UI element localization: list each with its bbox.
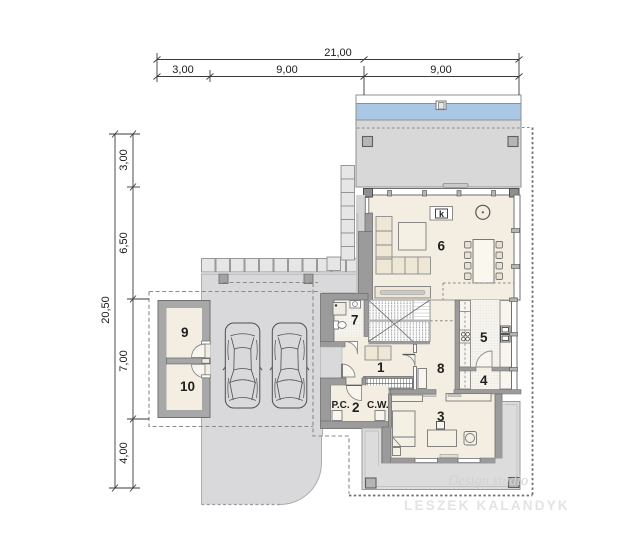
- svg-text:20,50: 20,50: [100, 296, 112, 324]
- svg-text:4: 4: [480, 373, 488, 388]
- svg-text:4,00: 4,00: [118, 442, 130, 463]
- svg-text:7: 7: [351, 313, 359, 328]
- svg-text:3,00: 3,00: [118, 149, 130, 170]
- svg-text:Design studio: Design studio: [447, 473, 528, 489]
- svg-text:P.C.: P.C.: [332, 400, 350, 411]
- svg-text:LESZEK KALANDYK: LESZEK KALANDYK: [404, 498, 570, 513]
- svg-text:3,00: 3,00: [172, 64, 193, 76]
- svg-text:21,00: 21,00: [324, 47, 352, 59]
- svg-text:9,00: 9,00: [276, 64, 297, 76]
- svg-text:9: 9: [181, 325, 189, 340]
- svg-text:2: 2: [352, 400, 360, 415]
- svg-text:3: 3: [437, 409, 445, 424]
- svg-text:1: 1: [377, 360, 385, 375]
- svg-text:7,00: 7,00: [118, 350, 130, 371]
- svg-text:10: 10: [180, 379, 195, 394]
- svg-text:6,50: 6,50: [118, 232, 130, 253]
- svg-text:6: 6: [438, 239, 446, 254]
- svg-text:C.W.: C.W.: [367, 400, 389, 411]
- svg-text:8: 8: [437, 361, 445, 376]
- svg-text:9,00: 9,00: [430, 64, 451, 76]
- svg-text:5: 5: [480, 330, 488, 345]
